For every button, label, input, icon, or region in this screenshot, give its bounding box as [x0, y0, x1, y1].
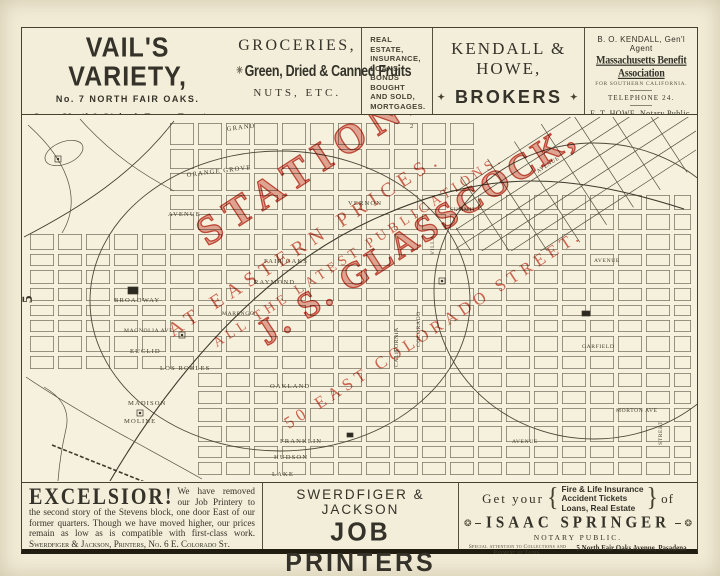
street-label: VERNON [348, 200, 382, 207]
groceries-title: GROCERIES, [236, 37, 358, 55]
street-label: STREET [658, 421, 664, 445]
street-label: GARFIELD [582, 344, 614, 350]
service-item: Loans, Real Estate [561, 504, 643, 513]
street-label: FAIR OAKS [264, 258, 308, 265]
ad-kendall-agent: B. O. KENDALL, Gen'l Agent Massachusetts… [584, 28, 697, 114]
ad-kendall-howe: KENDALL & HOWE, ✦ BROKERS ✦ 49 E. Colora… [433, 28, 584, 114]
vails-address: No. 7 NORTH FAIR OAKS. [25, 94, 230, 104]
street-label: MAGNOLIA AVE [124, 328, 173, 334]
springer-address: 5 North Fair Oaks Avenue, Pasadena [571, 543, 692, 552]
asterisk-ornament-icon: ✳ [236, 65, 242, 76]
street-label: MOLINE [124, 418, 156, 425]
rosette-ornament-icon: ❂ [464, 518, 472, 529]
kendall-howe-name: KENDALL & HOWE, [436, 39, 581, 79]
groceries-nuts-line: NUTS, ETC. [236, 87, 358, 99]
hairline-separator [630, 90, 652, 91]
street-label: AVENUE [512, 439, 538, 445]
top-ad-row: VAIL'S VARIETY, No. 7 NORTH FAIR OAKS. O… [22, 28, 697, 114]
rosette-ornament-icon: ❂ [684, 518, 692, 529]
street-label: MARENGO [222, 311, 254, 317]
ward-numeral: 2 [410, 123, 414, 130]
street-label: RAYMOND [254, 279, 295, 286]
groceries-fruits-line: ✳Green, Dried & Canned Fruits [236, 62, 358, 80]
rule-line [675, 523, 681, 524]
ward-numeral: 5 [22, 296, 36, 304]
diamond-ornament-icon: ✦ [570, 92, 580, 102]
left-brace: { [547, 484, 559, 514]
ad-vails-variety: VAIL'S VARIETY, No. 7 NORTH FAIR OAKS. O… [22, 28, 233, 114]
ad-excelsior: EXCELSIOR! We have removed our Job Print… [22, 483, 262, 549]
street-label: SUMMIT [450, 207, 476, 213]
springer-collections-note: Special attention to Collections and Pay… [464, 544, 571, 556]
right-brace: } [647, 484, 659, 514]
vails-title: VAIL'S VARIETY, [25, 33, 230, 91]
street-label: OAKLAND [270, 383, 310, 390]
street-label: VILLA [430, 235, 436, 255]
real-estate-line: REAL ESTATE, [370, 35, 426, 54]
map-canvas: GRAND ORANGE GROVE AVENUE VERNON SUMMIT … [22, 115, 697, 481]
street-label: AVENUE [168, 211, 201, 218]
printers-firm-name: SWERDFIGER & JACKSON [263, 487, 458, 517]
springer-footer-row: Special attention to Collections and Pay… [464, 544, 692, 556]
kendall-howe-brokers: ✦ BROKERS ✦ [436, 87, 581, 108]
street-label: HUDSON [274, 454, 308, 461]
street-label: COLORADO [416, 311, 422, 347]
street-label: LOS ROBLES [160, 365, 210, 372]
benefit-association-name: Massachusetts Benefit Association [588, 54, 694, 80]
street-label: CALIFORNIA [394, 327, 400, 367]
street-label: MADISON [128, 400, 166, 407]
ad-job-printers: SWERDFIGER & JACKSON JOB PRINTERS 6 E. C… [262, 483, 458, 549]
ad-groceries: GROCERIES, ✳Green, Dried & Canned Fruits… [233, 28, 361, 114]
map-sheet: VAIL'S VARIETY, No. 7 NORTH FAIR OAKS. O… [0, 0, 720, 576]
printers-title: JOB PRINTERS [263, 518, 458, 576]
street-label: EUCLID [130, 348, 161, 355]
springer-services-row: Get your { Fire & Life Insurance Acciden… [464, 485, 692, 513]
springer-get-your: Get your [482, 491, 544, 507]
springer-services-list: Fire & Life Insurance Accident Tickets L… [561, 485, 643, 513]
agent-region-line: FOR SOUTHERN CALIFORNIA. [588, 81, 694, 87]
pasadena-street-map: GRAND ORANGE GROVE AVENUE VERNON SUMMIT … [22, 114, 697, 483]
street-label: AVENUE [536, 156, 561, 175]
street-label: FRANKLIN [280, 438, 322, 445]
real-estate-line: MORTGAGES. [370, 102, 426, 112]
agent-name-line: B. O. KENDALL, Gen'l Agent [588, 35, 694, 53]
telephone-line: TELEPHONE 24. [588, 94, 694, 102]
excelsior-headline: EXCELSIOR! [29, 486, 173, 509]
street-label: MORTON AVE [616, 408, 658, 414]
diamond-ornament-icon: ✦ [437, 92, 447, 102]
springer-of: of [661, 491, 674, 507]
excelsior-paragraph: EXCELSIOR! We have removed our Job Print… [29, 486, 255, 550]
bottom-ad-row: EXCELSIOR! We have removed our Job Print… [22, 483, 697, 549]
printed-area: VAIL'S VARIETY, No. 7 NORTH FAIR OAKS. O… [21, 27, 698, 554]
street-label: LAKE [272, 471, 294, 478]
rule-line [475, 523, 481, 524]
ad-isaac-springer: Get your { Fire & Life Insurance Acciden… [458, 483, 697, 549]
springer-notary-title: NOTARY PUBLIC. [464, 533, 692, 542]
springer-name-row: ❂ ISAAC SPRINGER ❂ [464, 515, 692, 532]
street-label: AVENUE [594, 258, 620, 264]
street-label: BROADWAY [114, 297, 160, 304]
springer-name: ISAAC SPRINGER [484, 514, 672, 533]
real-estate-line: AND SOLD, [370, 92, 426, 102]
excelsior-signature: Swerdfiger & Jackson, Printers, No. 6 E.… [29, 539, 230, 549]
hairline-separator [630, 105, 652, 106]
